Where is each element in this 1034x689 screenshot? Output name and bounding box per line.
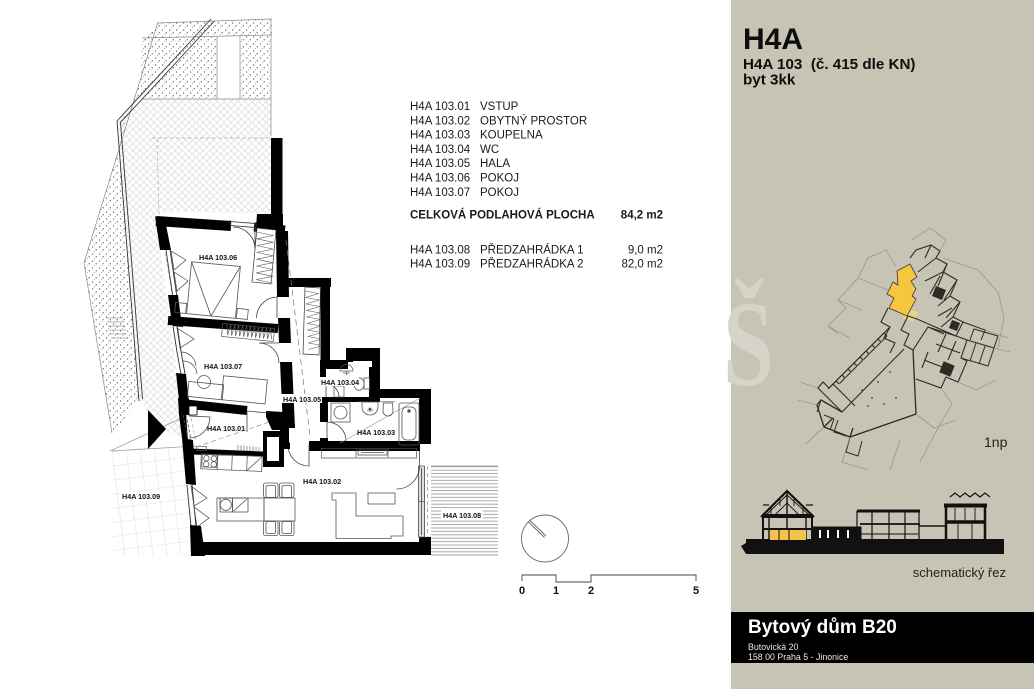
svg-text:H4A 103.09: H4A 103.09 (410, 259, 470, 271)
svg-text:Butovická 20: Butovická 20 (748, 642, 798, 652)
svg-text:byt 3kk: byt 3kk (743, 72, 796, 89)
svg-text:158 00 Praha 5 - Jinonice: 158 00 Praha 5 - Jinonice (748, 652, 848, 662)
svg-text:H4A 103.01: H4A 103.01 (207, 424, 245, 433)
svg-text:H4A 103.08: H4A 103.08 (410, 245, 470, 257)
svg-text:82,0 m2: 82,0 m2 (621, 259, 663, 271)
svg-text:H4A 103.06: H4A 103.06 (199, 253, 237, 262)
svg-text:5: 5 (693, 585, 699, 597)
svg-text:84,2 m2: 84,2 m2 (621, 210, 663, 222)
svg-text:HALA: HALA (480, 158, 510, 170)
svg-text:H4A 103.01: H4A 103.01 (410, 101, 470, 113)
svg-text:H4A 103.05: H4A 103.05 (410, 158, 470, 170)
svg-text:VSTUP: VSTUP (480, 101, 519, 113)
svg-text:H4A: H4A (743, 23, 803, 56)
svg-text:H4A 103.08: H4A 103.08 (443, 511, 481, 520)
svg-text:H4A 103.03: H4A 103.03 (410, 130, 470, 142)
svg-text:KOUPELNA: KOUPELNA (480, 130, 543, 142)
svg-text:Bytový dům B20: Bytový dům B20 (748, 617, 897, 638)
svg-text:1np: 1np (984, 434, 1008, 450)
svg-text:H4A 103.06: H4A 103.06 (410, 173, 470, 185)
svg-text:H4A 103.07: H4A 103.07 (410, 187, 470, 199)
svg-text:0: 0 (519, 585, 525, 597)
svg-text:POKOJ: POKOJ (480, 187, 519, 199)
svg-text:OBYTNÝ PROSTOR: OBYTNÝ PROSTOR (480, 114, 587, 127)
svg-text:H4A 103.03: H4A 103.03 (357, 428, 395, 437)
svg-text:H4A 103 (č. 415 dle KN): H4A 103 (č. 415 dle KN) (743, 56, 915, 73)
svg-text:1: 1 (553, 585, 559, 597)
svg-text:POKOJ: POKOJ (480, 173, 519, 185)
svg-text:PŘEDZAHRÁDKA 1: PŘEDZAHRÁDKA 1 (480, 244, 584, 257)
svg-text:H4A 103.04: H4A 103.04 (410, 144, 471, 156)
svg-text:2: 2 (588, 585, 594, 597)
svg-text:schematický řez: schematický řez (913, 565, 1006, 580)
svg-text:H4A 103.09: H4A 103.09 (122, 492, 160, 501)
svg-text:H4A 103.02: H4A 103.02 (410, 115, 470, 127)
svg-text:H4A 103.04: H4A 103.04 (321, 378, 359, 387)
svg-text:PŘEDZAHRÁDKA 2: PŘEDZAHRÁDKA 2 (480, 258, 584, 271)
svg-text:Š: Š (723, 278, 774, 413)
svg-text:9,0 m2: 9,0 m2 (628, 245, 663, 257)
svg-text:H4A 103.05: H4A 103.05 (283, 395, 321, 404)
svg-text:CELKOVÁ PODLAHOVÁ PLOCHA: CELKOVÁ PODLAHOVÁ PLOCHA (410, 209, 595, 222)
svg-text:WC: WC (480, 144, 499, 156)
svg-text:H4A 103.07: H4A 103.07 (204, 362, 242, 371)
svg-text:H4A 103.02: H4A 103.02 (303, 477, 341, 486)
